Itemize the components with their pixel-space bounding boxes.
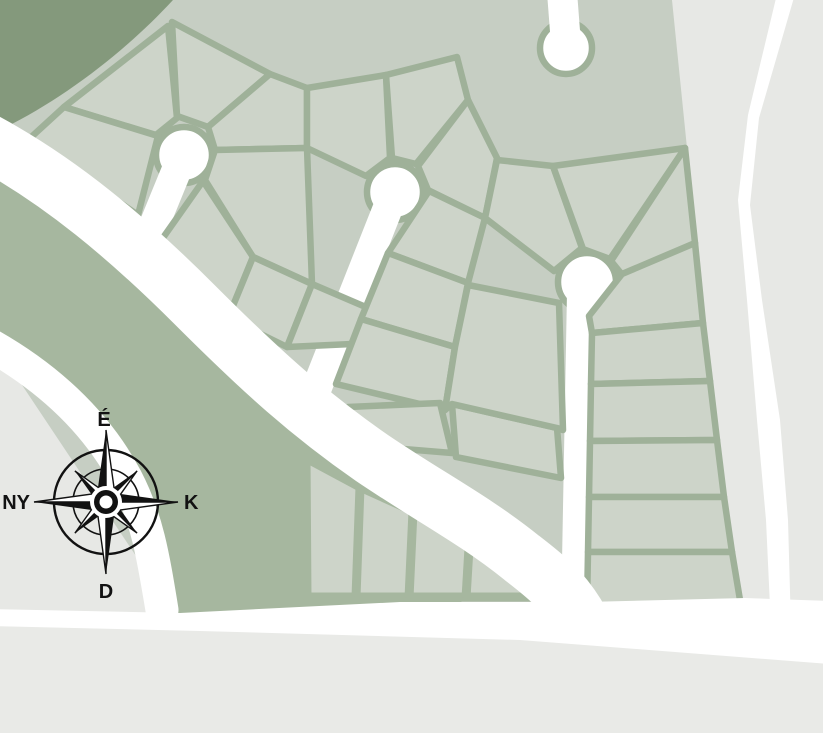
compass-label-north: É (97, 408, 110, 431)
compass-label-south: D (99, 581, 113, 603)
lot-line (356, 487, 360, 597)
lot-line (409, 511, 413, 598)
lot (589, 440, 724, 497)
lot (588, 497, 732, 552)
compass-hub-center (100, 496, 113, 509)
site-plan-page: É D NY K (0, 0, 823, 733)
site-plan-map: É D NY K (0, 0, 823, 733)
lot (590, 381, 717, 441)
lot (445, 285, 563, 430)
compass-label-west: NY (2, 492, 30, 514)
lot (591, 323, 710, 384)
compass-label-east: K (184, 492, 199, 514)
lot (587, 552, 741, 606)
stem-road-top (562, 0, 566, 44)
